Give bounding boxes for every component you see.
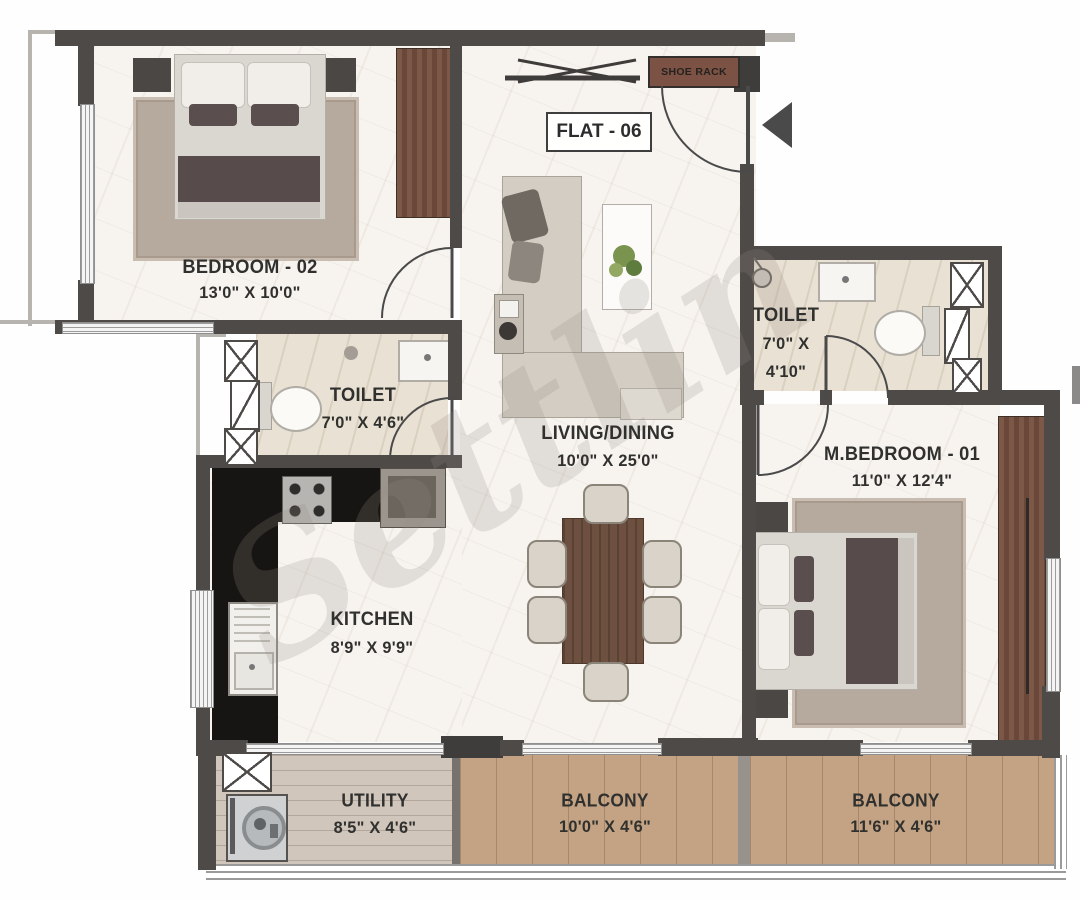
utility-name-label: UTILITY xyxy=(341,791,408,812)
entrance-arrow-icon xyxy=(762,102,792,148)
balcony1-name-label: BALCONY xyxy=(561,791,648,812)
bedroom2-dims-label: 13'0" X 10'0" xyxy=(199,283,300,303)
balcony2-dims-label: 11'6" X 4'6" xyxy=(850,817,941,837)
toilet1-dims-label: 7'0" X 4'6" xyxy=(322,413,405,433)
living-name-label: LIVING/DINING xyxy=(541,423,674,445)
utility-dims-label: 8'5" X 4'6" xyxy=(334,818,417,838)
flat-number-text: FLAT - 06 xyxy=(556,121,641,143)
toilet2-dims-label: 4'10" xyxy=(766,362,806,382)
toilet2-name-label: TOILET xyxy=(753,305,819,327)
balcony2-name-label: BALCONY xyxy=(852,791,939,812)
kitchen-dims-label: 8'9" X 9'9" xyxy=(331,638,414,658)
balcony1-dims-label: 10'0" X 4'6" xyxy=(559,817,651,837)
bedroom2-name-label: BEDROOM - 02 xyxy=(182,257,317,279)
shower-icon xyxy=(753,258,771,287)
floor-plan: FLAT - 06 SHOE RACK BEDROOM - 02 13'0" X… xyxy=(0,0,1080,902)
door-arc xyxy=(662,86,748,172)
mbedroom-dims-label: 11'0" X 12'4" xyxy=(852,471,953,491)
plant-icon xyxy=(609,245,642,277)
toilet1-name-label: TOILET xyxy=(330,385,396,407)
living-dims-label: 10'0" X 25'0" xyxy=(557,451,658,471)
console-table-icon xyxy=(505,60,640,82)
mbedroom-name-label: M.BEDROOM - 01 xyxy=(824,444,980,466)
toilet2-dims-label: 7'0" X xyxy=(763,334,810,354)
door-arc xyxy=(382,248,452,318)
kitchen-name-label: KITCHEN xyxy=(330,609,413,631)
flat-number-label: FLAT - 06 xyxy=(546,112,652,152)
door-arc xyxy=(758,405,828,475)
door-arc xyxy=(826,336,888,398)
